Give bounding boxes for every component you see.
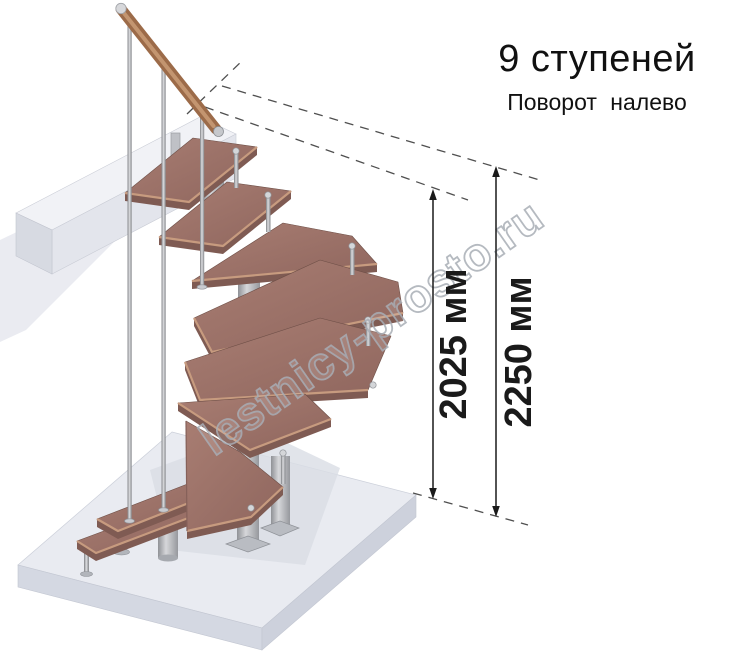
product-illustration-page: lestnicy-prosto.ru 2025 мм 2250 мм 9 сту…: [0, 0, 744, 655]
handrail-top-cap: [116, 3, 126, 13]
turn-direction-subtitle: Поворот налево: [452, 89, 742, 116]
baluster-rod: [200, 116, 204, 288]
baluster-rod: [128, 24, 132, 522]
handrail-end-ferrule: [214, 127, 224, 137]
dimension-label-total-height: 2250 мм: [498, 276, 540, 427]
steps-count-title: 9 ступеней: [452, 40, 742, 80]
handrail: [116, 3, 224, 136]
dimension-label-stair-height: 2025 мм: [433, 268, 475, 419]
reference-line-floor: [413, 493, 528, 525]
caption: 9 ступеней Поворот налево: [452, 40, 742, 116]
baluster-rod: [162, 68, 166, 511]
